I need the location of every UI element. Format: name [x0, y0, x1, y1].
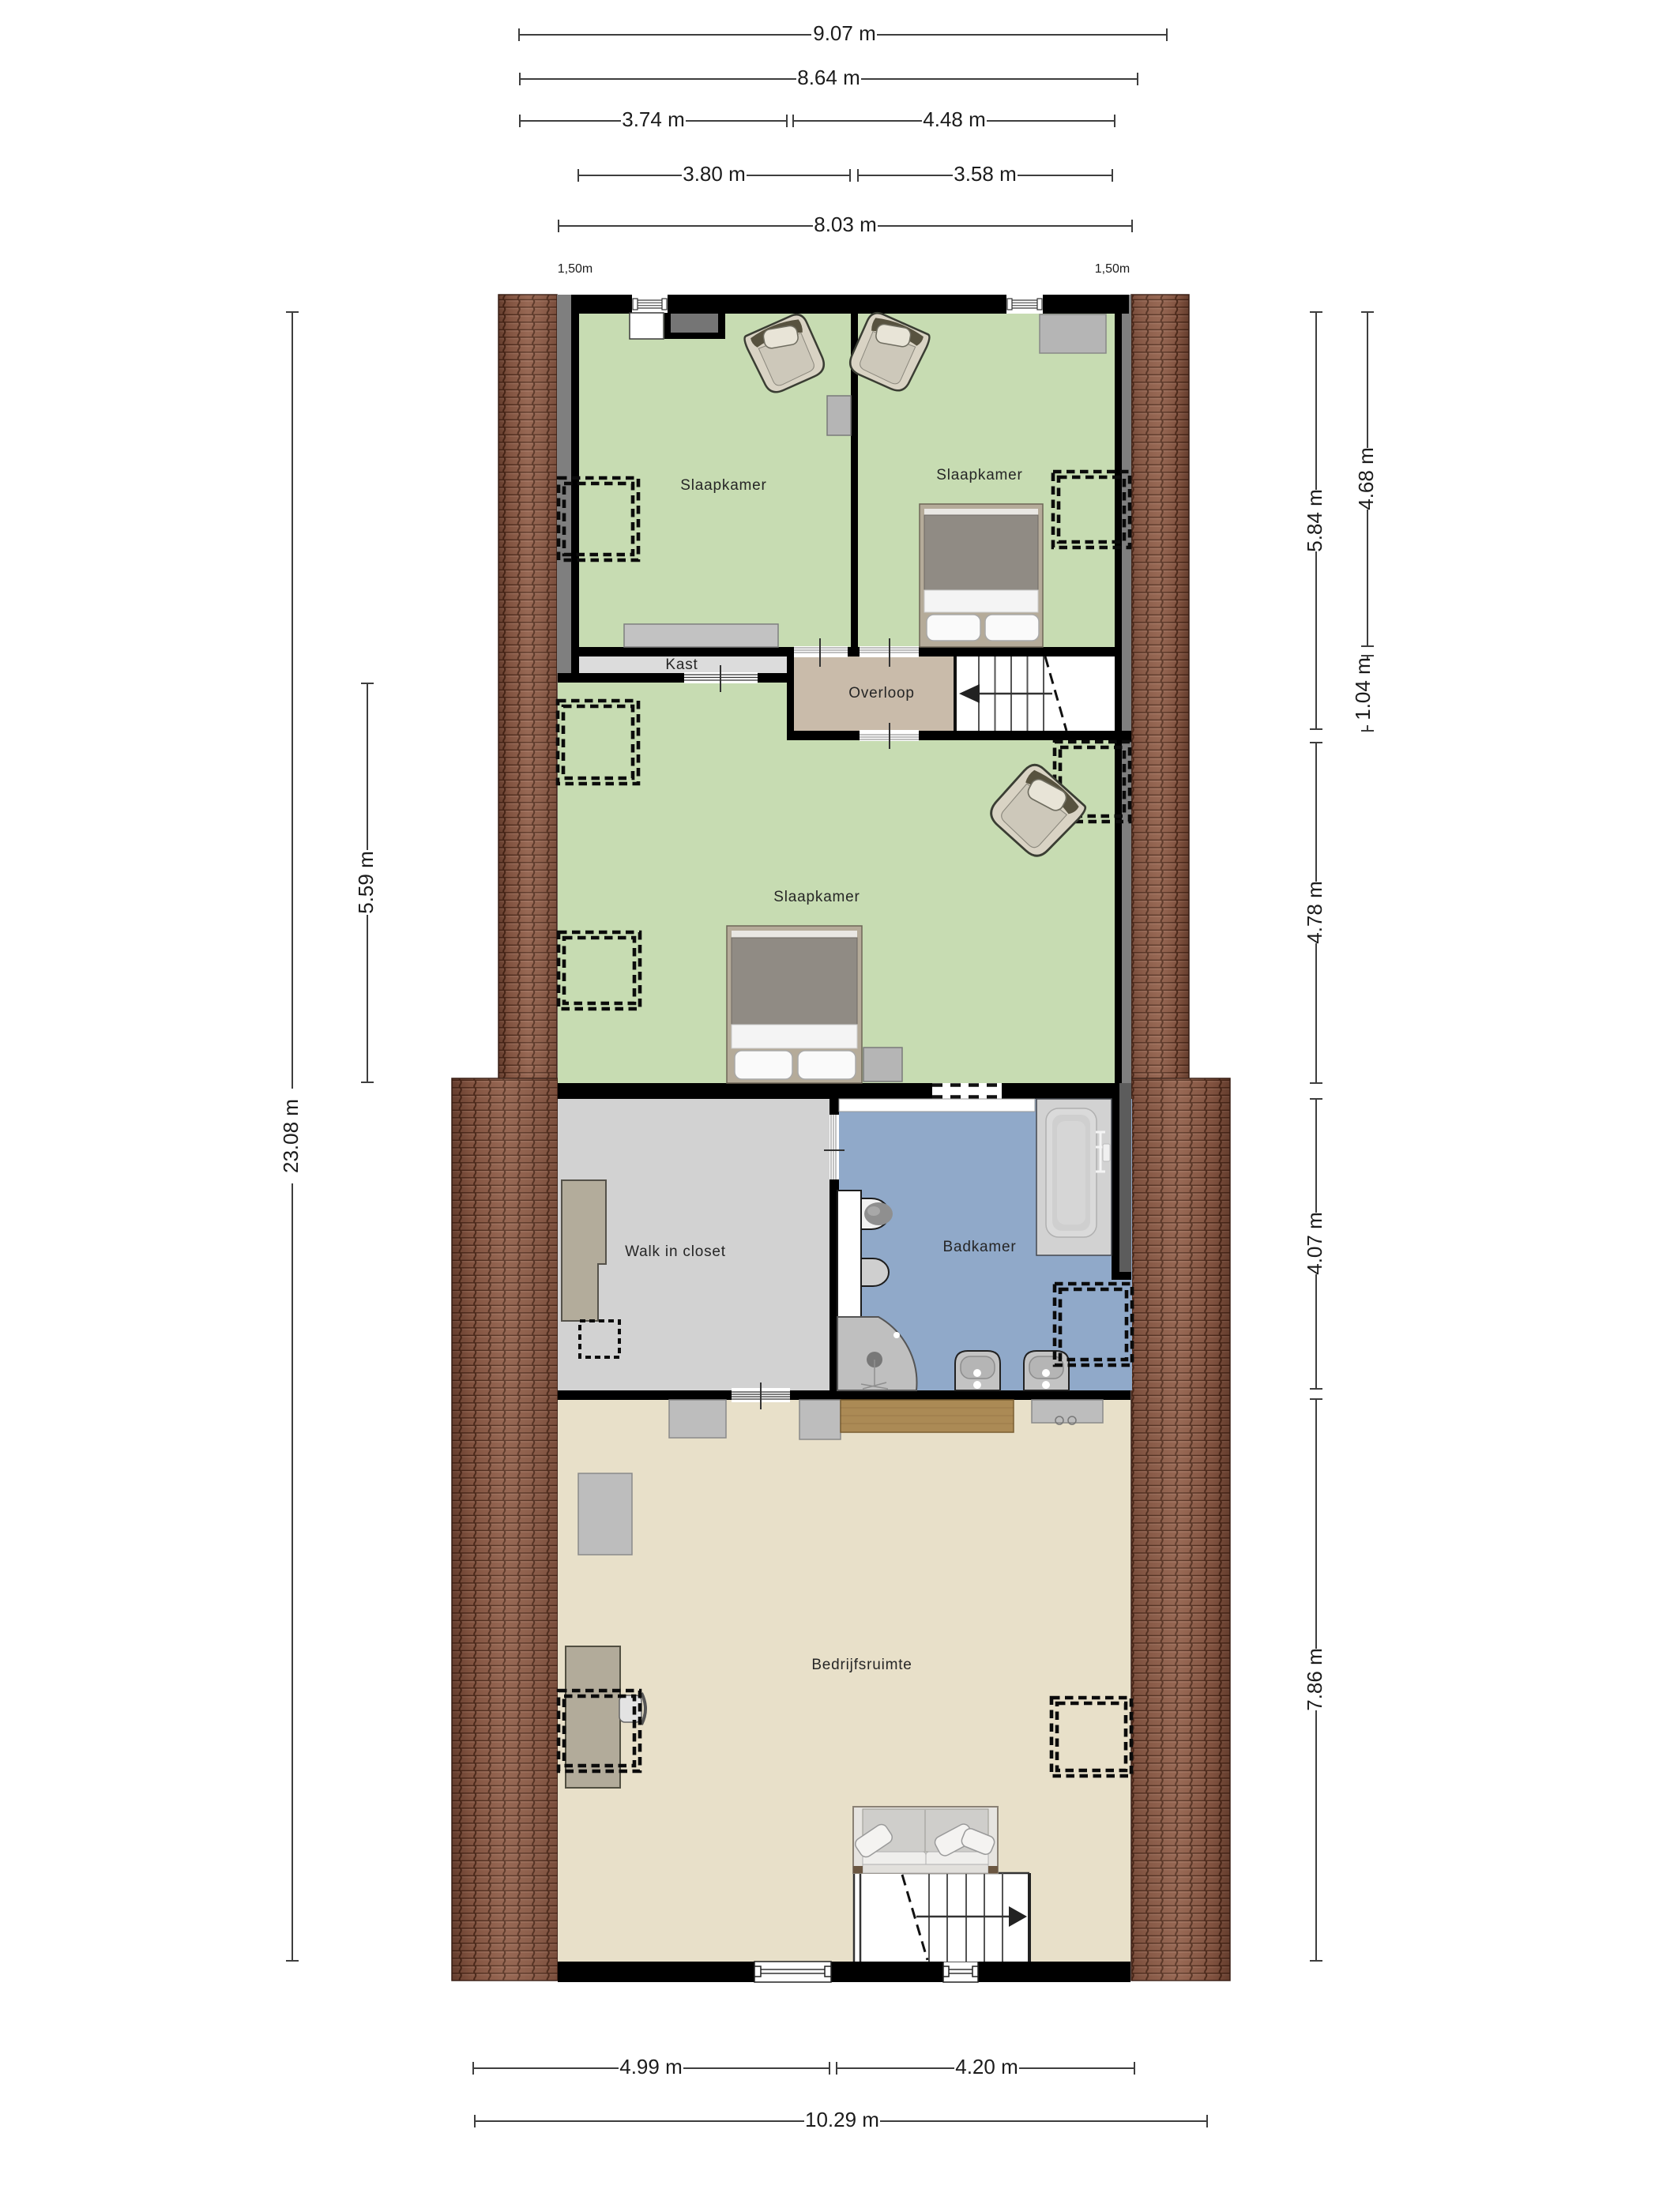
svg-text:23.08 m: 23.08 m	[279, 1099, 303, 1173]
svg-text:4.07 m: 4.07 m	[1303, 1212, 1326, 1275]
svg-text:3.58 m: 3.58 m	[954, 162, 1017, 186]
svg-text:Slaapkamer: Slaapkamer	[773, 889, 860, 905]
svg-text:10.29 m: 10.29 m	[805, 2108, 879, 2131]
svg-text:Slaapkamer: Slaapkamer	[680, 477, 766, 494]
svg-text:4.20 m: 4.20 m	[955, 2055, 1018, 2078]
svg-text:9.07 m: 9.07 m	[813, 21, 876, 45]
svg-text:4.78 m: 4.78 m	[1303, 881, 1326, 944]
svg-text:Walk in closet: Walk in closet	[625, 1243, 726, 1260]
svg-text:Overloop: Overloop	[848, 685, 915, 702]
svg-text:3.74 m: 3.74 m	[622, 107, 685, 131]
svg-text:8.64 m: 8.64 m	[797, 66, 860, 89]
svg-text:1.04 m: 1.04 m	[1351, 657, 1375, 720]
svg-text:5.84 m: 5.84 m	[1303, 489, 1326, 552]
svg-text:Slaapkamer: Slaapkamer	[936, 467, 1022, 483]
svg-text:1,50m: 1,50m	[558, 262, 592, 276]
svg-text:7.86 m: 7.86 m	[1303, 1648, 1326, 1711]
svg-text:4.99 m: 4.99 m	[619, 2055, 683, 2078]
svg-text:4.48 m: 4.48 m	[923, 107, 986, 131]
svg-text:Bedrijfsruimte: Bedrijfsruimte	[811, 1657, 912, 1673]
svg-text:Kast: Kast	[665, 656, 698, 673]
svg-text:5.59 m: 5.59 m	[354, 851, 378, 914]
svg-text:8.03 m: 8.03 m	[814, 213, 877, 236]
svg-text:3.80 m: 3.80 m	[683, 162, 746, 186]
svg-text:4.68 m: 4.68 m	[1354, 447, 1378, 510]
svg-text:1,50m: 1,50m	[1095, 262, 1130, 276]
svg-text:Badkamer: Badkamer	[943, 1239, 1017, 1255]
